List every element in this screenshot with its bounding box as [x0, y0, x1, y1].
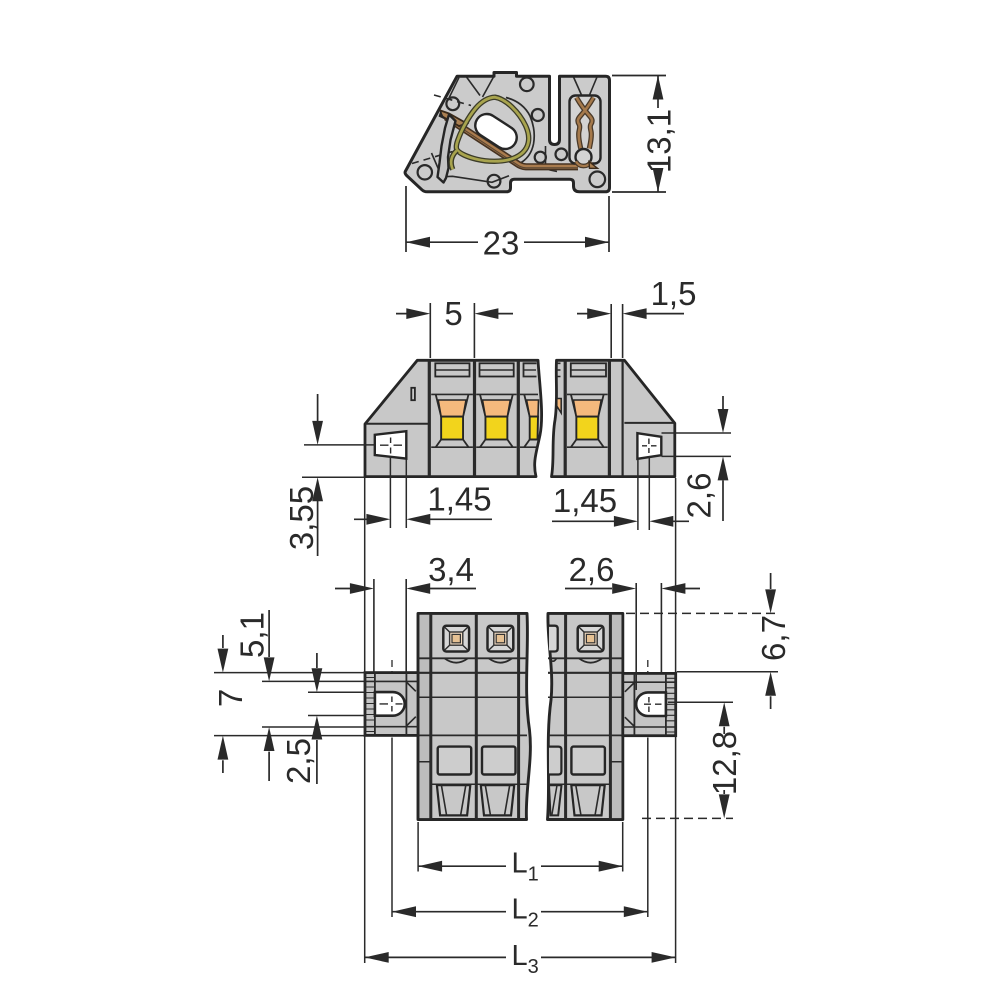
svg-text:3,55: 3,55 [283, 486, 320, 550]
svg-text:L1: L1 [512, 848, 539, 886]
svg-text:L3: L3 [512, 940, 539, 978]
svg-text:1,45: 1,45 [427, 481, 491, 518]
svg-text:1,45: 1,45 [553, 482, 617, 519]
svg-text:1,5: 1,5 [651, 275, 697, 312]
svg-text:12,8: 12,8 [706, 731, 743, 795]
svg-text:2,6: 2,6 [681, 473, 718, 519]
svg-text:6,7: 6,7 [755, 615, 792, 661]
svg-text:2,5: 2,5 [280, 738, 317, 784]
svg-text:5,1: 5,1 [234, 612, 271, 658]
svg-text:3,4: 3,4 [428, 551, 474, 588]
svg-text:2,6: 2,6 [569, 551, 615, 588]
svg-text:23: 23 [483, 225, 520, 262]
svg-text:L2: L2 [512, 894, 539, 932]
svg-text:13,1: 13,1 [641, 109, 678, 173]
svg-text:5: 5 [444, 295, 462, 332]
svg-text:7: 7 [212, 689, 249, 707]
